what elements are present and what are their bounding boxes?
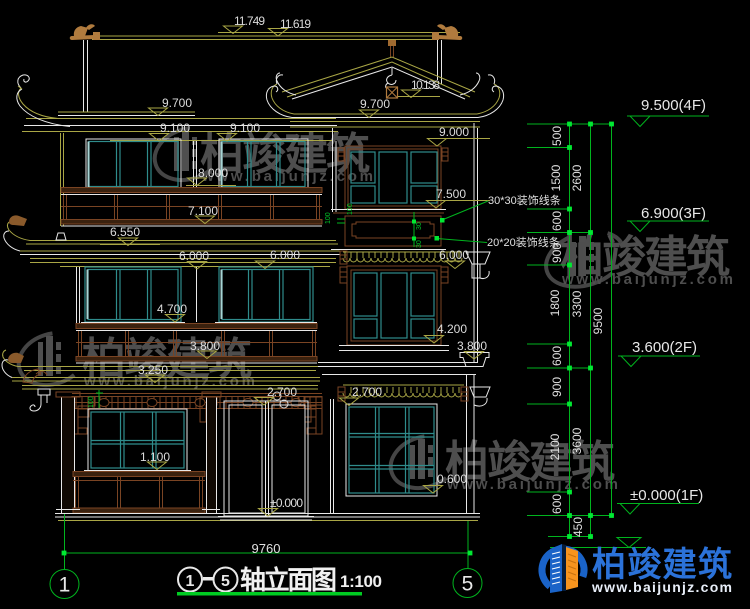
svg-text:9760: 9760 [252, 541, 281, 556]
svg-text:1800: 1800 [548, 289, 562, 316]
svg-text:2.700: 2.700 [352, 385, 382, 399]
svg-text:30: 30 [416, 240, 423, 248]
svg-text:9.700: 9.700 [360, 97, 390, 111]
svg-text:1: 1 [59, 574, 71, 597]
svg-text:4.200: 4.200 [437, 322, 467, 336]
svg-text:4.700: 4.700 [157, 302, 187, 316]
svg-text:1: 1 [186, 573, 195, 590]
svg-text:900: 900 [550, 377, 564, 397]
svg-text:6.550: 6.550 [110, 225, 140, 239]
svg-text:500: 500 [550, 126, 564, 146]
svg-text:600: 600 [550, 346, 564, 366]
svg-text:600: 600 [550, 494, 564, 514]
svg-text:100: 100 [325, 212, 332, 224]
svg-text:9.100: 9.100 [230, 121, 260, 135]
svg-text:1:100: 1:100 [340, 572, 382, 591]
svg-text:100: 100 [347, 203, 354, 215]
svg-text:9500: 9500 [591, 307, 605, 334]
svg-text:2600: 2600 [570, 164, 584, 191]
svg-text:5: 5 [221, 573, 230, 590]
svg-text:6.000: 6.000 [179, 249, 209, 263]
svg-text:30: 30 [416, 222, 423, 230]
svg-text:9.000: 9.000 [439, 125, 469, 139]
svg-text:www.baijunjz.com: www.baijunjz.com [591, 579, 732, 595]
svg-text:3300: 3300 [570, 290, 584, 317]
svg-text:0.600: 0.600 [437, 472, 467, 486]
svg-text:±0.000(1F): ±0.000(1F) [630, 487, 703, 504]
svg-text:600: 600 [550, 211, 564, 231]
svg-text:±0.000: ±0.000 [270, 496, 303, 510]
svg-text:3.600(2F): 3.600(2F) [632, 339, 697, 356]
svg-text:轴立面图: 轴立面图 [240, 565, 337, 595]
svg-text:30*30装饰线条: 30*30装饰线条 [488, 193, 561, 207]
svg-text:6.000: 6.000 [439, 248, 469, 262]
svg-text:20*20装饰线条: 20*20装饰线条 [487, 235, 560, 249]
svg-text:1500: 1500 [549, 164, 563, 191]
svg-text:450: 450 [571, 517, 585, 537]
svg-text:900: 900 [550, 243, 564, 263]
svg-text:2100: 2100 [548, 433, 562, 460]
svg-text:9.100: 9.100 [160, 121, 190, 135]
svg-text:3600: 3600 [570, 427, 584, 454]
svg-text:7.500: 7.500 [436, 187, 466, 201]
svg-text:9.500(4F): 9.500(4F) [641, 97, 706, 114]
svg-text:3.800: 3.800 [457, 339, 487, 353]
svg-text:5: 5 [462, 573, 474, 596]
svg-text:6.000: 6.000 [270, 248, 300, 262]
svg-text:2.700: 2.700 [267, 385, 297, 399]
svg-text:100: 100 [88, 396, 95, 408]
svg-text:6.900(3F): 6.900(3F) [641, 205, 706, 222]
